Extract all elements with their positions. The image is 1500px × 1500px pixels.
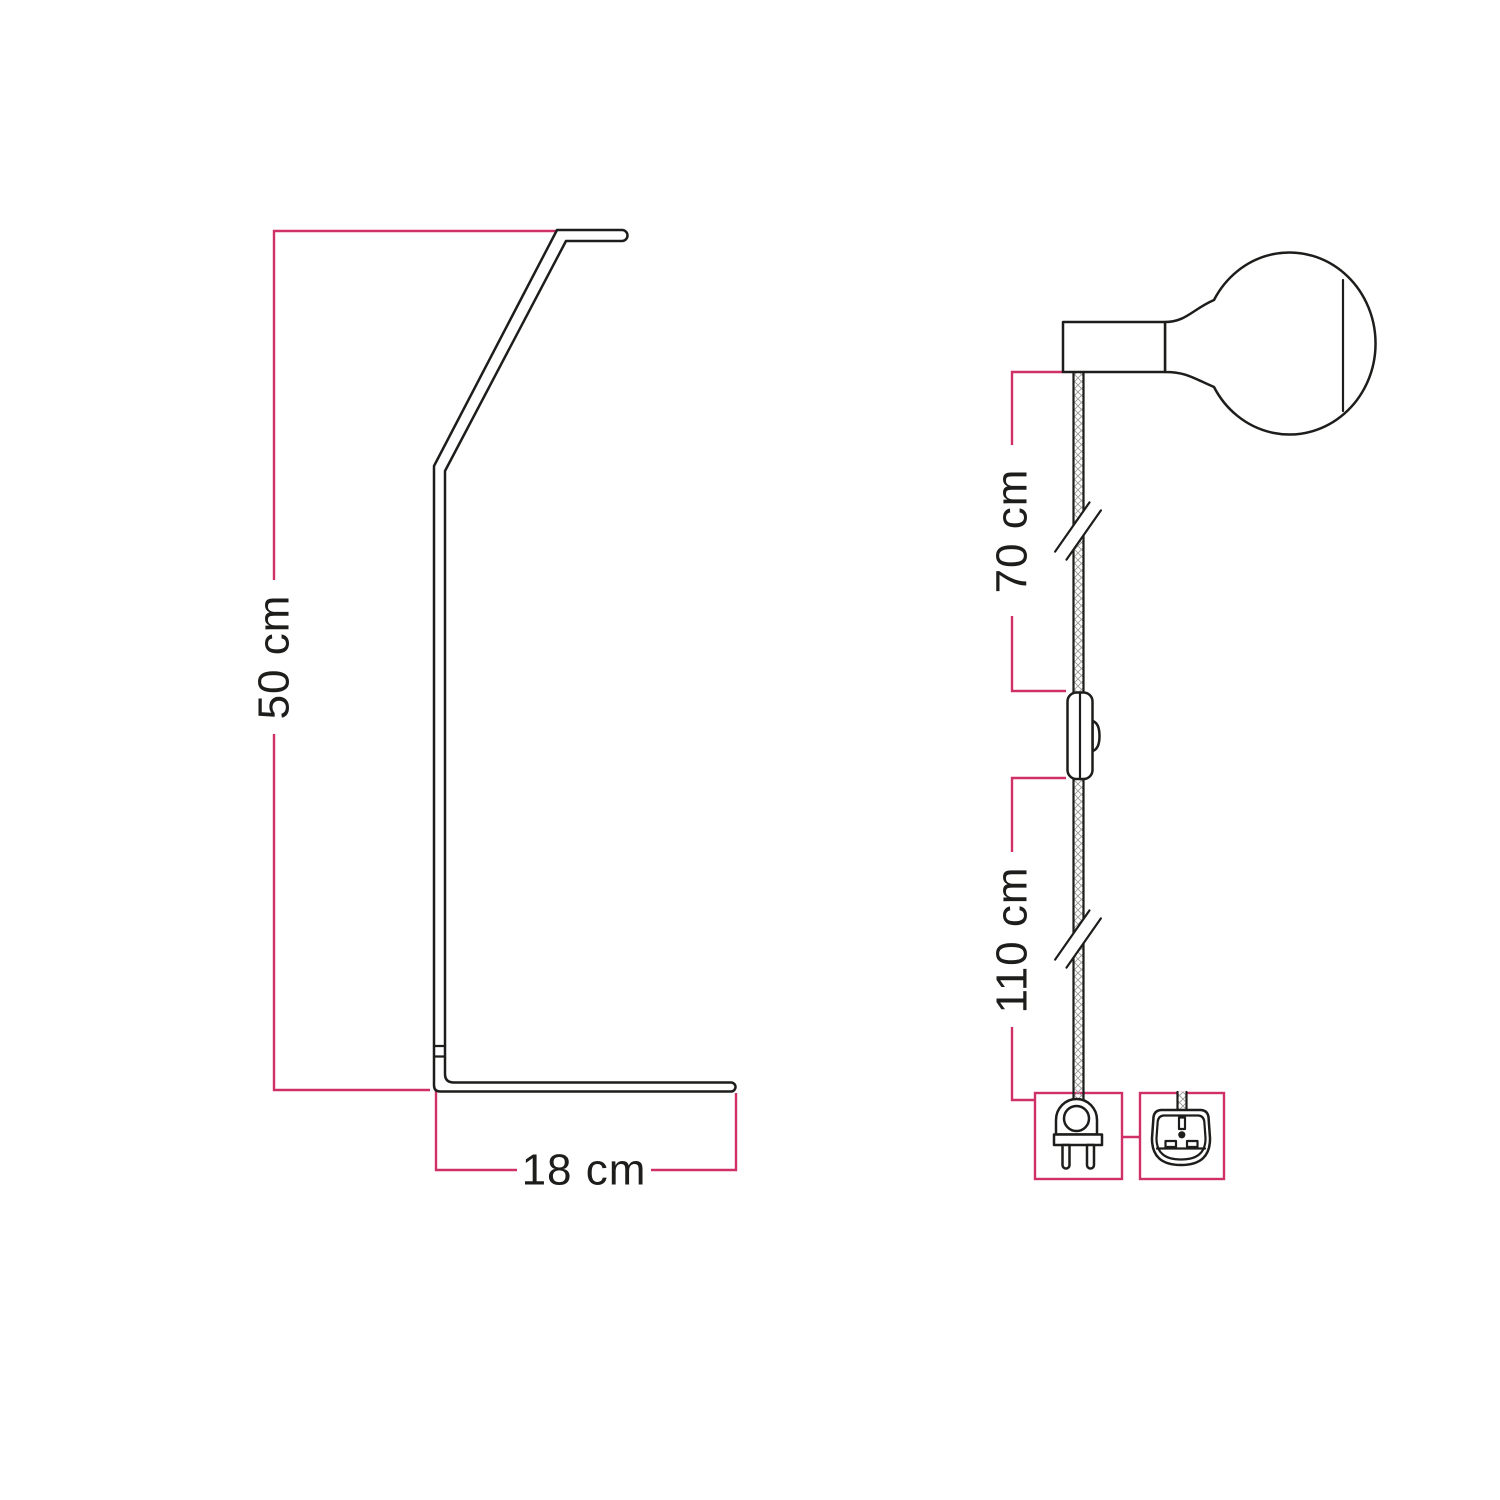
pendant-lamp-view: 70 cm 110 cm: [988, 253, 1376, 1180]
height-dimension-line-upper: [274, 231, 556, 580]
base-dimension-label: 18 cm: [522, 1146, 647, 1195]
base-dimension-line-left: [436, 1091, 517, 1170]
lower-cable-dimension-line-top: [1012, 778, 1066, 852]
euro-plug-base: [1054, 1135, 1102, 1146]
height-dimension-line-lower: [274, 734, 430, 1090]
stand-outline: [434, 230, 736, 1092]
euro-plug-pin-right: [1087, 1145, 1094, 1169]
lamp-dimensions-diagram: 50 cm 18 cm 70 cm 110 cm: [0, 0, 1500, 1500]
euro-plug-icon: [1054, 1099, 1102, 1169]
inline-switch: [1068, 693, 1100, 780]
height-dimension-label: 50 cm: [250, 595, 299, 720]
upper-cable-dimension-line-top: [1012, 372, 1063, 445]
uk-plug-center-dot: [1178, 1131, 1185, 1138]
upper-cable-dimension-line-bottom: [1012, 616, 1066, 691]
euro-plug-pin-left: [1063, 1145, 1070, 1169]
base-dimension-line-right: [651, 1093, 736, 1170]
uk-plug-icon: [1152, 1092, 1210, 1165]
diagram-canvas: 50 cm 18 cm 70 cm 110 cm: [0, 0, 1500, 1500]
upper-cable-dimension-label: 70 cm: [988, 469, 1037, 594]
stand-side-view: 50 cm 18 cm: [250, 230, 737, 1195]
lower-cable-dimension-line-bottom: [1012, 1027, 1035, 1100]
lower-cable-dimension-label: 110 cm: [988, 866, 1037, 1013]
lamp-holder: [1063, 322, 1165, 372]
euro-plug-ring: [1064, 1106, 1089, 1131]
